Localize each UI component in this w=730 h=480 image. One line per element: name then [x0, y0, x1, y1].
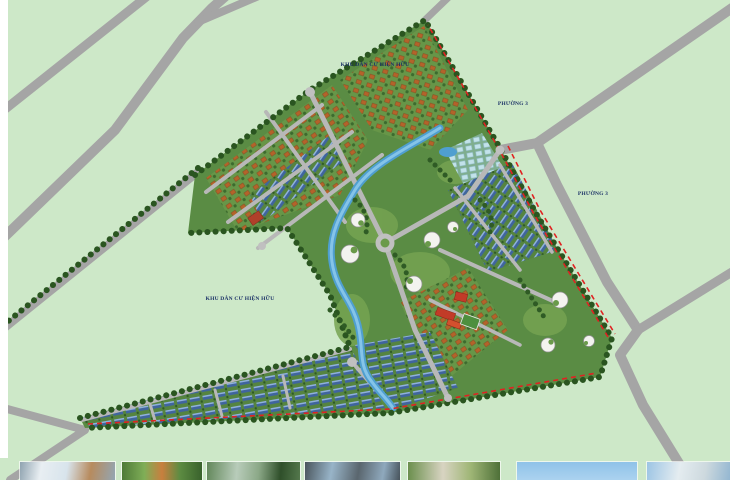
- gallery-thumbnail-5[interactable]: [408, 462, 500, 480]
- masterplan-map: KHU DÂN CƯ HIỆN HỮU KHU DÂN CƯ HIỆN HỮU …: [0, 0, 730, 480]
- tower: [584, 336, 595, 347]
- page-edge-margin: [0, 0, 8, 458]
- gallery-thumbnail-6[interactable]: [517, 462, 637, 480]
- tower: [424, 232, 440, 248]
- label-existing-area-left: KHU DÂN CƯ HIỆN HỮU: [206, 294, 275, 302]
- tower: [541, 338, 555, 352]
- tower: [448, 222, 459, 233]
- gallery-thumbnail-1[interactable]: [20, 462, 115, 480]
- label-existing-area-top: KHU DÂN CƯ HIỆN HỮU: [341, 60, 410, 68]
- gallery-thumbnail-7[interactable]: [647, 462, 730, 480]
- tower: [552, 292, 568, 308]
- label-ward3-lower: PHƯỜNG 3: [578, 189, 608, 197]
- tower: [406, 276, 422, 292]
- gallery-thumbnail-2[interactable]: [122, 462, 202, 480]
- gallery-thumbnail-3[interactable]: [207, 462, 300, 480]
- gallery-thumbnail-4[interactable]: [305, 462, 400, 480]
- tower: [341, 245, 359, 263]
- tower: [351, 213, 365, 227]
- masterplan-viewer: KHU DÂN CƯ HIỆN HỮU KHU DÂN CƯ HIỆN HỮU …: [0, 0, 730, 480]
- label-ward3-upper: PHƯỜNG 3: [498, 99, 528, 107]
